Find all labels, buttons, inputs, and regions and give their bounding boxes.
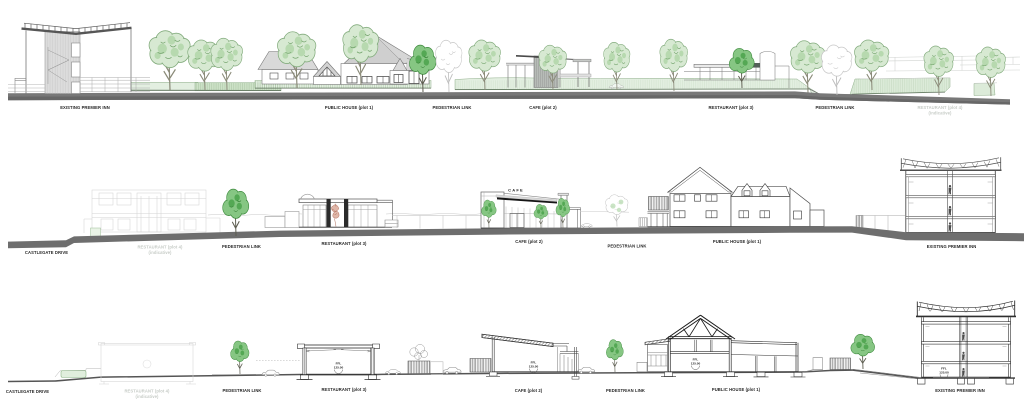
svg-text:EXISTING PREMIER INN: EXISTING PREMIER INN [927,244,977,249]
svg-text:PEDESTRIAN LINK: PEDESTRIAN LINK [223,388,262,393]
svg-text:(indicative): (indicative) [928,111,952,116]
svg-text:PEDESTRIAN LINK: PEDESTRIAN LINK [606,388,645,393]
svg-text:CAFE (plot 2): CAFE (plot 2) [515,239,543,244]
svg-text:EXISTING PREMIER INN: EXISTING PREMIER INN [935,388,985,393]
svg-text:RESTAURANT (plot 4): RESTAURANT (plot 4) [137,245,183,250]
svg-text:PEDESTRIAN LINK: PEDESTRIAN LINK [608,244,647,249]
svg-text:RESTAURANT (plot 3): RESTAURANT (plot 3) [708,105,754,110]
svg-text:RESTAURANT (plot 4): RESTAURANT (plot 4) [917,105,963,110]
svg-text:PUBLIC HOUSE (plot 1): PUBLIC HOUSE (plot 1) [713,239,762,244]
svg-text:PEDESTRIAN LINK: PEDESTRIAN LINK [222,244,261,249]
svg-text:125.00: 125.00 [334,365,344,369]
svg-text:CAFE: CAFE [508,188,524,193]
svg-text:EXISTING PREMIER INN: EXISTING PREMIER INN [60,105,110,110]
svg-text:(indicative): (indicative) [148,250,172,255]
svg-text:PEDESTRIAN LINK: PEDESTRIAN LINK [816,105,855,110]
svg-text:125.00: 125.00 [529,364,539,368]
svg-text:RESTAURANT (plot 3): RESTAURANT (plot 3) [321,241,367,246]
svg-text:PEDESTRIAN LINK: PEDESTRIAN LINK [433,105,472,110]
svg-text:CAFE (plot 2): CAFE (plot 2) [515,388,543,393]
svg-text:125.00: 125.00 [691,361,701,365]
svg-text:(indicative): (indicative) [135,394,159,399]
svg-text:PUBLIC HOUSE (plot 1): PUBLIC HOUSE (plot 1) [712,387,761,392]
svg-text:RESTAURANT (plot 3): RESTAURANT (plot 3) [321,387,367,392]
svg-text:PUBLIC HOUSE (plot 1): PUBLIC HOUSE (plot 1) [325,105,374,110]
svg-text:CASTLEGATE DRIVE: CASTLEGATE DRIVE [6,389,49,394]
svg-text:CAFE (plot 2): CAFE (plot 2) [529,105,557,110]
svg-text:CASTLEGATE DRIVE: CASTLEGATE DRIVE [25,250,68,255]
svg-text:125.00: 125.00 [939,370,949,374]
svg-text:RESTAURANT (plot 4): RESTAURANT (plot 4) [124,389,170,394]
